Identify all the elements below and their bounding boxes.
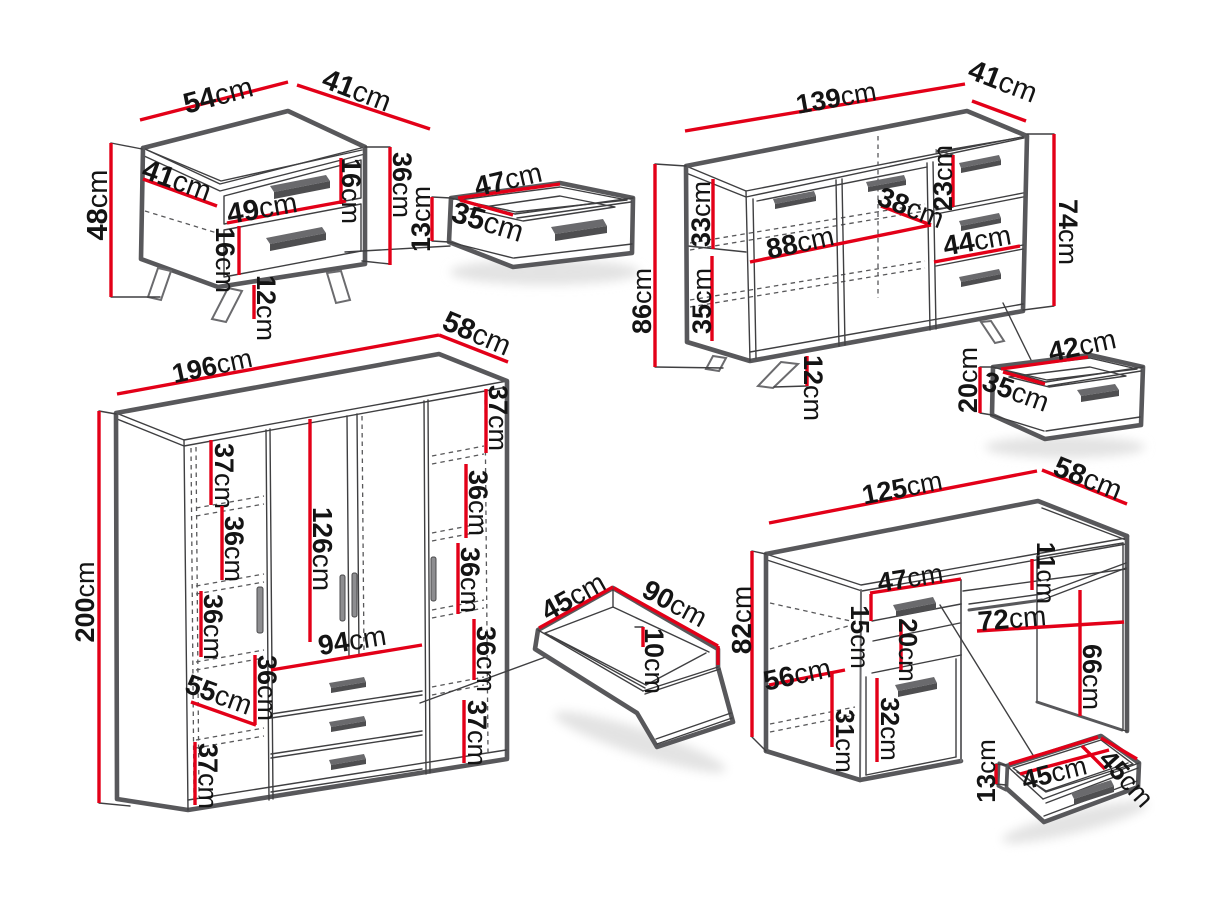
svg-text:20cm: 20cm — [893, 618, 923, 682]
svg-text:200cm: 200cm — [70, 561, 100, 642]
svg-text:37cm: 37cm — [193, 743, 223, 809]
svg-text:37cm: 37cm — [209, 443, 239, 509]
svg-text:72cm: 72cm — [977, 600, 1048, 637]
svg-text:16cm: 16cm — [336, 158, 366, 224]
svg-text:36cm: 36cm — [198, 594, 228, 660]
svg-text:15cm: 15cm — [845, 605, 875, 669]
svg-text:35cm: 35cm — [687, 268, 717, 334]
svg-text:36cm: 36cm — [252, 655, 282, 721]
svg-text:13cm: 13cm — [971, 739, 1001, 803]
svg-text:37cm: 37cm — [462, 700, 492, 766]
svg-text:126cm: 126cm — [307, 507, 338, 591]
svg-text:12cm: 12cm — [798, 355, 828, 421]
svg-text:12cm: 12cm — [251, 275, 281, 341]
svg-text:36cm: 36cm — [455, 547, 485, 613]
svg-text:82cm: 82cm — [726, 586, 757, 654]
svg-text:32cm: 32cm — [875, 697, 905, 761]
svg-text:66cm: 66cm — [1077, 644, 1107, 710]
svg-text:74cm: 74cm — [1053, 199, 1083, 265]
svg-text:11cm: 11cm — [1031, 542, 1061, 604]
svg-text:23cm: 23cm — [928, 145, 958, 211]
svg-text:13cm: 13cm — [406, 186, 436, 252]
svg-text:36cm: 36cm — [471, 626, 501, 692]
svg-text:31cm: 31cm — [830, 709, 860, 773]
svg-text:10cm: 10cm — [639, 628, 669, 694]
svg-text:36cm: 36cm — [463, 470, 493, 536]
svg-text:20cm: 20cm — [953, 347, 983, 413]
svg-text:86cm: 86cm — [627, 268, 657, 334]
svg-text:48cm: 48cm — [82, 170, 114, 241]
svg-text:33cm: 33cm — [686, 181, 716, 247]
svg-text:16cm: 16cm — [210, 227, 240, 293]
svg-text:36cm: 36cm — [219, 516, 249, 582]
svg-text:37cm: 37cm — [483, 385, 513, 451]
